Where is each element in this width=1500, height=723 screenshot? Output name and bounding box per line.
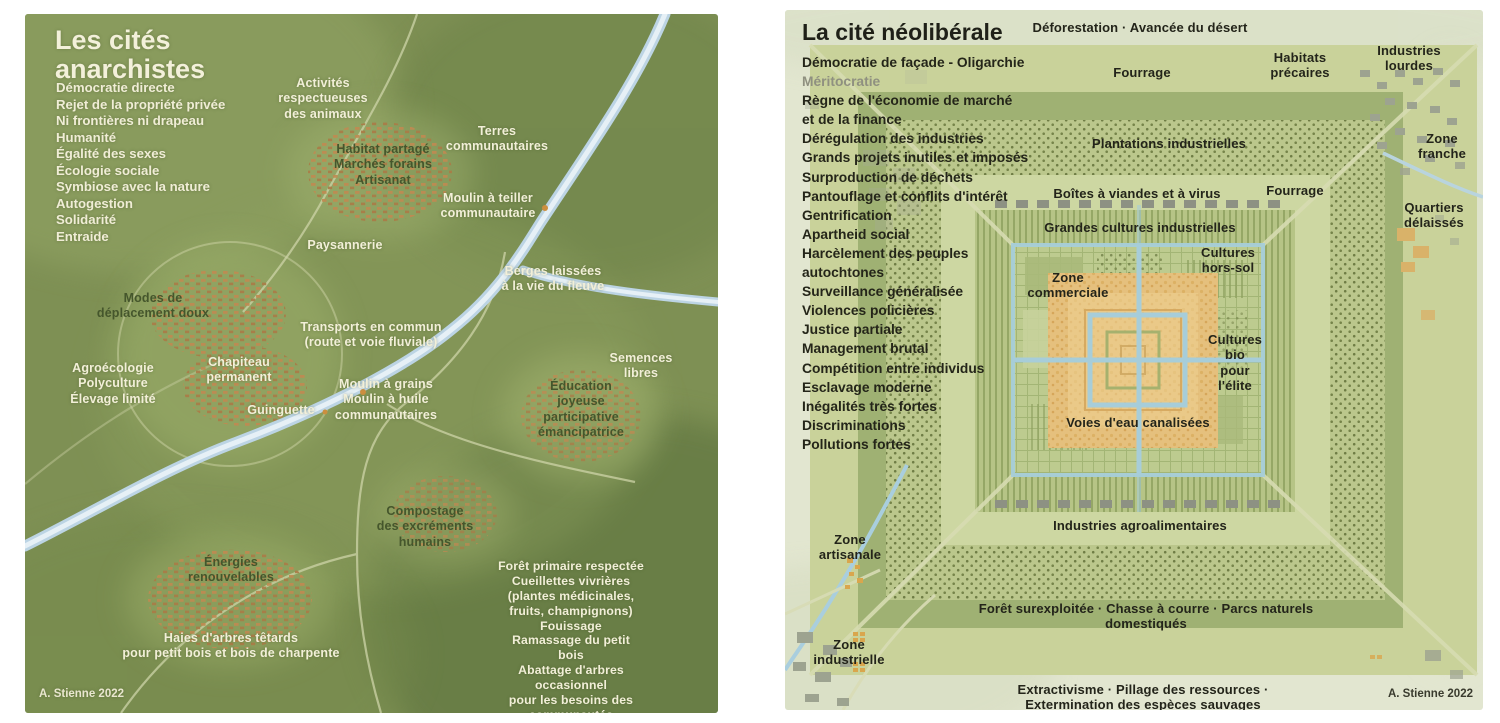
principle-item: Dérégulation des industries: [802, 129, 1028, 148]
label-moulins-grains: Moulin à grains Moulin à huile communaut…: [335, 377, 437, 423]
principle-item: Surveillance généralisée: [802, 282, 1028, 301]
label-deforestation: Déforestation · Avancée du désert: [1033, 20, 1248, 35]
principle-item: Ni frontières ni drapeau: [56, 113, 225, 130]
principle-item: Apartheid social: [802, 225, 1028, 244]
principle-item: Humanité: [56, 130, 225, 147]
principle-item: Égalité des sexes: [56, 146, 225, 163]
principle-item: Écologie sociale: [56, 163, 225, 180]
artist-credit: A. Stienne 2022: [1388, 688, 1473, 700]
label-zone-franche: Zone franche: [1418, 131, 1466, 162]
label-agroecologie: Agroécologie Polyculture Élevage limité: [70, 361, 155, 407]
label-activites-animaux: Activités respectueuses des animaux: [278, 76, 368, 122]
label-habitat-partage: Habitat partagé Marchés forains Artisana…: [334, 142, 432, 188]
label-education: Éducation joyeuse participative émancipa…: [538, 379, 624, 440]
label-berges-fleuve: Berges laissées à la vie du fleuve: [502, 264, 605, 295]
label-semences-libres: Semences libres: [609, 351, 672, 382]
right-principles-list: Démocratie de façade - Oligarchie Mérito…: [802, 53, 1028, 454]
label-cultures-hors-sol: Cultures hors-sol: [1201, 245, 1255, 276]
label-deplacement-doux: Modes de déplacement doux: [97, 291, 209, 322]
principle-item: Pollutions fortes: [802, 435, 1028, 454]
principle-item: Méritocratie: [802, 72, 1028, 91]
principle-item: Discriminations: [802, 416, 1028, 435]
principle-item: Gentrification: [802, 206, 1028, 225]
label-energies: Énergies renouvelables: [188, 555, 274, 586]
label-guinguette: Guinguette: [247, 403, 314, 418]
label-boites-viandes: Boîtes à viandes et à virus: [1053, 186, 1220, 201]
principle-item: Inégalités très fortes: [802, 397, 1028, 416]
label-industries-lourdes: Industries lourdes: [1377, 43, 1441, 74]
label-grandes-cultures: Grandes cultures industrielles: [1044, 220, 1236, 235]
principle-item: Esclavage moderne: [802, 378, 1028, 397]
principle-item: Compétition entre individus: [802, 359, 1028, 378]
left-map-title: Les cités anarchistes: [55, 26, 205, 83]
label-haies-tetards: Haies d'arbres têtards pour petit bois e…: [122, 631, 339, 662]
label-habitats-precaires: Habitats précaires: [1270, 50, 1329, 81]
label-fourrage-top: Fourrage: [1113, 65, 1171, 80]
anarchist-cities-map: Les cités anarchistes Démocratie directe…: [25, 14, 718, 713]
principle-item: Grands projets inutiles et imposés: [802, 148, 1028, 167]
principle-item: Surproduction de déchets: [802, 168, 1028, 187]
label-zone-artisanale: Zone artisanale: [819, 532, 881, 563]
label-compostage: Compostage des excréments humains: [377, 504, 474, 550]
principle-item: Autogestion: [56, 196, 225, 213]
principle-item: Règne de l'économie de marché: [802, 91, 1028, 110]
illustration-canvas: Les cités anarchistes Démocratie directe…: [0, 0, 1500, 723]
principle-item: Solidarité: [56, 212, 225, 229]
principle-item: autochtones: [802, 263, 1028, 282]
principle-item: Entraide: [56, 229, 225, 246]
artist-credit: A. Stienne 2022: [39, 688, 124, 700]
right-map-title: La cité néolibérale: [802, 20, 1003, 44]
label-zone-industrielle: Zone industrielle: [813, 637, 884, 668]
principle-item: Management brutal: [802, 339, 1028, 358]
label-quartiers-delaisses: Quartiers délaissés: [1404, 200, 1464, 231]
label-chapiteau: Chapiteau permanent: [206, 355, 271, 386]
principle-item: Rejet de la propriété privée: [56, 97, 225, 114]
left-principles-list: Démocratie directe Rejet de la propriété…: [56, 80, 225, 245]
label-industries-agro: Industries agroalimentaires: [1053, 518, 1227, 533]
label-voies-eau: Voies d'eau canalisées: [1066, 415, 1209, 430]
principle-item: Justice partiale: [802, 320, 1028, 339]
principle-item: Démocratie directe: [56, 80, 225, 97]
label-foret-primaire: Forêt primaire respectée Cueillettes viv…: [498, 559, 645, 713]
label-fourrage-right: Fourrage: [1266, 183, 1324, 198]
principle-item: et de la finance: [802, 110, 1028, 129]
principle-item: Harcèlement des peuples: [802, 244, 1028, 263]
label-cultures-bio: Cultures bio pour l'élite: [1208, 332, 1262, 393]
principle-item: Symbiose avec la nature: [56, 179, 225, 196]
label-zone-commerciale: Zone commerciale: [1027, 270, 1108, 301]
label-plantations: Plantations industrielles: [1092, 136, 1246, 151]
label-moulin-teiller: Moulin à teiller communautaire: [440, 191, 535, 222]
neoliberal-city-map: La cité néolibérale Démocratie de façade…: [785, 10, 1483, 710]
principle-item: Violences policières: [802, 301, 1028, 320]
label-foret-surexploitee: Forêt surexploitée · Chasse à courre · P…: [978, 601, 1315, 632]
label-paysannerie: Paysannerie: [307, 238, 382, 253]
label-transports-commun: Transports en commun (route et voie fluv…: [300, 320, 441, 351]
label-terres-communautaires: Terres communautaires: [446, 124, 548, 155]
principle-item: Pantouflage et conflits d'intérêt: [802, 187, 1028, 206]
principle-item: Démocratie de façade - Oligarchie: [802, 53, 1028, 72]
label-extractivisme: Extractivisme · Pillage des ressources ·…: [973, 682, 1313, 710]
